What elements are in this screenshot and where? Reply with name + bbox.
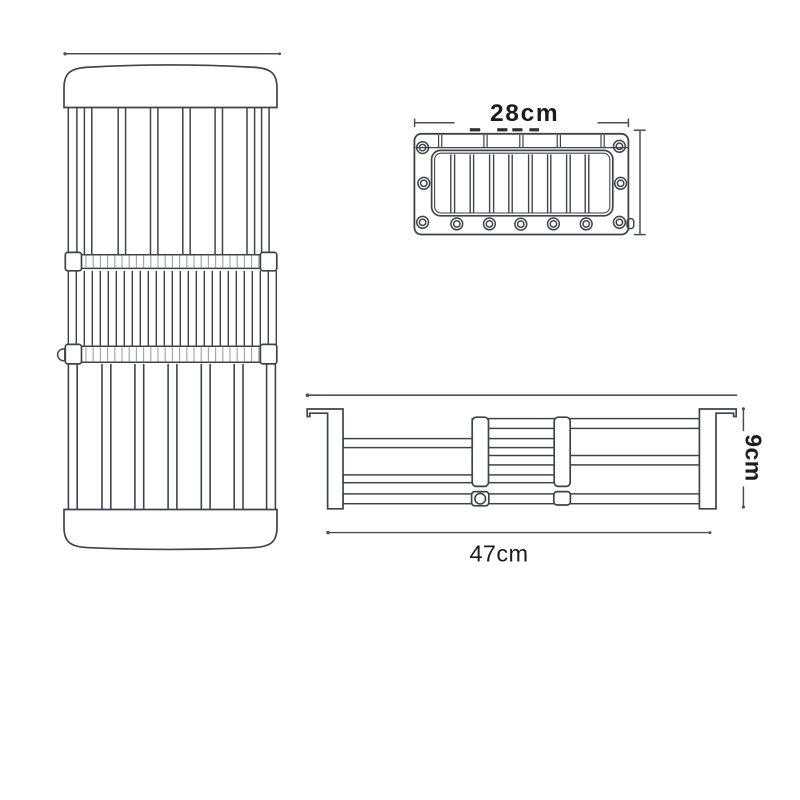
svg-text:47cm: 47cm <box>469 541 528 567</box>
svg-text:9cm: 9cm <box>741 434 767 482</box>
svg-text:28cm: 28cm <box>490 100 559 127</box>
